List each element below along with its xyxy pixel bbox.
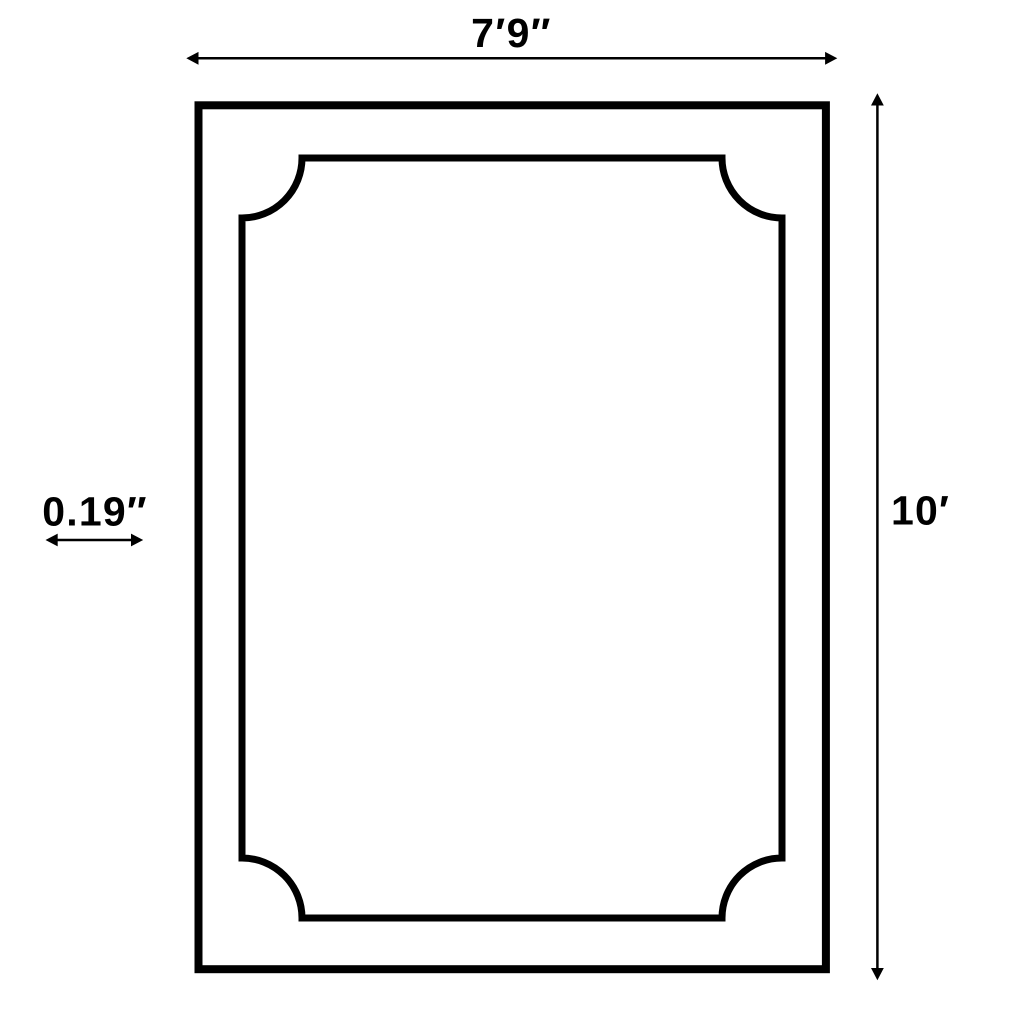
svg-text:7′9″: 7′9″ — [471, 10, 552, 56]
svg-text:0.19″: 0.19″ — [42, 489, 147, 535]
svg-text:10′: 10′ — [891, 488, 950, 534]
